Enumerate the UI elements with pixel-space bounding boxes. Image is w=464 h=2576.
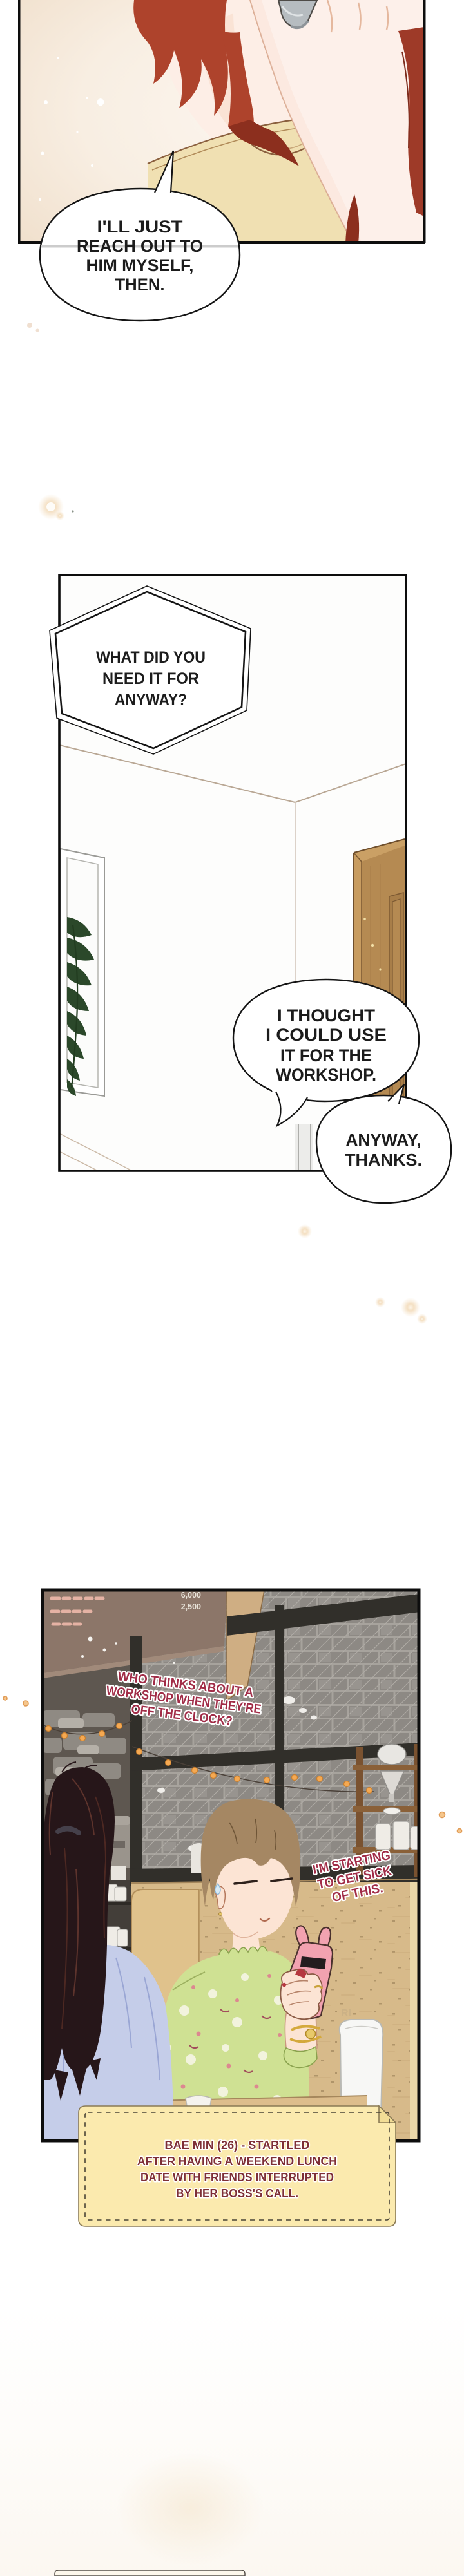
svg-text:ANYWAY,: ANYWAY,: [346, 1130, 421, 1150]
svg-text:I COULD USE: I COULD USE: [266, 1025, 387, 1045]
svg-text:RI: RI: [341, 2008, 351, 2019]
svg-text:ANYWAY?: ANYWAY?: [115, 691, 187, 709]
svg-text:BY HER BOSS'S CALL.: BY HER BOSS'S CALL.: [176, 2187, 298, 2200]
svg-text:WHAT DID YOU: WHAT DID YOU: [96, 649, 206, 667]
svg-text:NEED IT FOR: NEED IT FOR: [102, 670, 199, 688]
svg-text:IT FOR THE: IT FOR THE: [280, 1046, 372, 1065]
svg-text:DATE WITH FRIENDS INTERRUPTED: DATE WITH FRIENDS INTERRUPTED: [140, 2171, 334, 2184]
svg-text:I'LL JUST: I'LL JUST: [97, 217, 184, 236]
svg-text:THEN.: THEN.: [115, 275, 165, 294]
svg-text:THANKS.: THANKS.: [345, 1150, 422, 1170]
svg-text:I THOUGHT: I THOUGHT: [277, 1006, 376, 1025]
svg-text:AFTER HAVING A WEEKEND LUNCH: AFTER HAVING A WEEKEND LUNCH: [137, 2155, 337, 2168]
svg-text:2,500: 2,500: [181, 1602, 201, 1611]
svg-text:BAE MIN (26) - STARTLED: BAE MIN (26) - STARTLED: [165, 2139, 310, 2152]
svg-text:6,000: 6,000: [181, 1591, 201, 1600]
svg-text:WORKSHOP.: WORKSHOP.: [276, 1065, 376, 1084]
svg-text:REACH OUT TO: REACH OUT TO: [77, 236, 203, 256]
svg-text:HIM MYSELF,: HIM MYSELF,: [86, 256, 194, 275]
